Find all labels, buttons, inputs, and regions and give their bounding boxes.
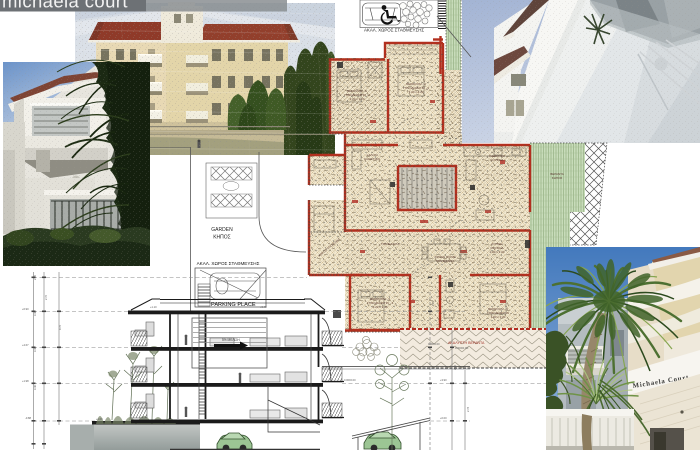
svg-text:ΑΚΑΛ. ΧΩΡΟΣ ΣΤΑΘΜΕΥΣΗΣ: ΑΚΑΛ. ΧΩΡΟΣ ΣΤΑΘΜΕΥΣΗΣ <box>197 261 260 266</box>
svg-text:+1.98: +1.98 <box>22 379 29 383</box>
svg-text:ΚΗΠΟΣ: ΚΗΠΟΣ <box>213 235 231 241</box>
svg-text:+1.10: +1.10 <box>150 305 157 309</box>
svg-text:3.20 x 3.20: 3.20 x 3.20 <box>409 90 424 94</box>
svg-text:+6.40: +6.40 <box>260 305 267 309</box>
svg-text:GARDEN: GARDEN <box>211 227 233 233</box>
svg-text:2.70: 2.70 <box>33 274 37 280</box>
svg-text:+0.00: +0.00 <box>440 416 447 420</box>
svg-text:ΤΡΑΠΕΖΑΡΙΑ: ΤΡΑΠΕΖΑΡΙΑ <box>436 259 454 263</box>
svg-text:ΑΚΑΛΥΠΤΗ ΒΕΡΑΝΤΑ: ΑΚΑΛΥΠΤΗ ΒΕΡΑΝΤΑ <box>448 341 485 345</box>
svg-text:1.10: 1.10 <box>431 300 435 306</box>
svg-text:3.20 x 3.40: 3.20 x 3.40 <box>373 305 388 309</box>
svg-text:3.40: 3.40 <box>33 346 37 352</box>
svg-text:2.76: 2.76 <box>466 406 470 412</box>
svg-text:0.00±0.00: 0.00±0.00 <box>428 342 440 346</box>
svg-text:ΚΗΠΟΣ: ΚΗΠΟΣ <box>552 176 563 180</box>
svg-text:+1.00: +1.00 <box>96 417 103 421</box>
svg-text:+3.90: +3.90 <box>440 378 447 382</box>
svg-text:5% ΜΚΛΙΣΗ: 5% ΜΚΛΙΣΗ <box>222 338 240 342</box>
svg-text:0.00±0.00: 0.00±0.00 <box>455 346 469 350</box>
svg-text:michaela court: michaela court <box>2 0 128 12</box>
svg-text:3.40: 3.40 <box>33 384 37 390</box>
svg-text:3.00 x 3.30: 3.00 x 3.30 <box>491 315 506 319</box>
svg-text:ΤΡΑΠΕΖΑΡΙΑ: ΤΡΑΠΕΖΑΡΙΑ <box>381 242 399 246</box>
svg-text:3.40: 3.40 <box>33 310 37 316</box>
svg-text:+4.67: +4.67 <box>22 343 29 347</box>
svg-text:-0.88: -0.88 <box>25 416 31 420</box>
svg-text:ΑΚΑΛ. ΧΩΡΟΣ ΣΤΑΘΜΕΥΣΗΣ: ΑΚΑΛ. ΧΩΡΟΣ ΣΤΑΘΜΕΥΣΗΣ <box>364 28 424 33</box>
svg-text:ΚΑΘΙΣΤΙΚΟ: ΚΑΘΙΣΤΙΚΟ <box>364 157 381 161</box>
svg-text:+6.90: +6.90 <box>22 307 29 311</box>
svg-text:9.70: 9.70 <box>58 324 62 330</box>
svg-text:3.10 x 3.20: 3.10 x 3.20 <box>350 97 365 101</box>
svg-text:ΚΟΥΖΙΝΑ: ΚΟΥΖΙΝΑ <box>491 158 504 162</box>
svg-text:2.70: 2.70 <box>453 364 457 370</box>
svg-text:2.90 x 3.20: 2.90 x 3.20 <box>490 250 505 254</box>
svg-text:0.00±0.00: 0.00±0.00 <box>344 378 356 382</box>
svg-text:2.70: 2.70 <box>44 294 48 300</box>
